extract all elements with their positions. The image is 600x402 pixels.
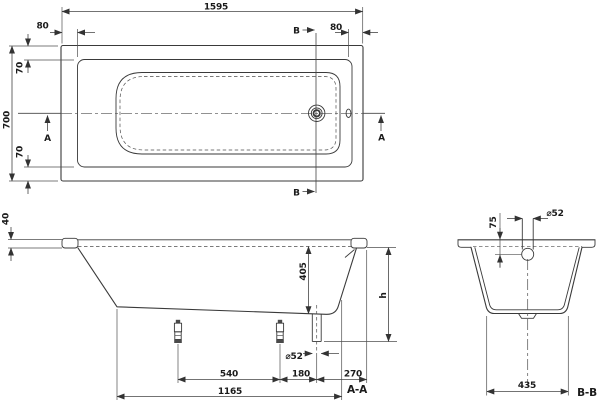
overflow-mark bbox=[345, 250, 355, 258]
dim-length-1595: 1595 bbox=[62, 3, 363, 44]
foot-base bbox=[276, 339, 284, 343]
dim-rim-side-top-70: 70 bbox=[16, 34, 75, 74]
adjustable-foot-right bbox=[276, 320, 284, 383]
section-label-b: B bbox=[293, 189, 300, 199]
section-bb-view: ⌀52 75 435 B-B bbox=[458, 209, 597, 399]
foot-body bbox=[276, 323, 283, 332]
section-marker-a-right: A bbox=[378, 116, 385, 144]
section-label-a: A bbox=[44, 134, 51, 144]
dim-label-70: 70 bbox=[16, 62, 26, 74]
rim-hook-right bbox=[582, 240, 595, 247]
dim-drain-depth-75: 75 bbox=[489, 213, 522, 268]
dim-label-80: 80 bbox=[36, 22, 48, 32]
section-aa-view: 40 405 h ⌀52 540 18 bbox=[2, 213, 398, 400]
dim-label-1595: 1595 bbox=[204, 3, 228, 13]
dim-rim-end-left-80: 80 bbox=[36, 22, 95, 58]
section-label-a: A bbox=[378, 134, 385, 144]
section-aa-label: A-A bbox=[347, 384, 368, 396]
dim-label-1165: 1165 bbox=[218, 387, 242, 397]
dim-rim-end-right-80: 80 bbox=[330, 23, 378, 57]
dim-height-h: h bbox=[367, 248, 396, 342]
tub-profile bbox=[78, 248, 357, 314]
foot-base bbox=[174, 339, 182, 343]
dim-rim-side-bottom-70: 70 bbox=[16, 146, 75, 194]
foot-cap bbox=[278, 320, 282, 323]
section-label-b: B bbox=[293, 27, 300, 37]
dim-depth-405: 405 bbox=[299, 247, 309, 314]
dim-label-40: 40 bbox=[2, 213, 12, 225]
technical-drawing-page: 1595 80 80 700 70 bbox=[0, 0, 600, 402]
section-bb-label: B-B bbox=[577, 387, 597, 399]
bathtub-technical-drawing: 1595 80 80 700 70 bbox=[0, 0, 600, 402]
dim-label-435: 435 bbox=[518, 381, 536, 391]
dim-label-270: 270 bbox=[344, 370, 362, 380]
dim-rim-height-40: 40 bbox=[2, 213, 12, 261]
foot-cap bbox=[176, 320, 180, 323]
dim-label-540: 540 bbox=[220, 370, 238, 380]
dim-label-d52: ⌀52 bbox=[285, 352, 302, 362]
dim-label-700: 700 bbox=[3, 111, 13, 129]
dim-drain-diameter-aa: ⌀52 bbox=[285, 352, 339, 362]
dim-label-180: 180 bbox=[292, 370, 310, 380]
dim-label-405: 405 bbox=[299, 262, 309, 280]
dim-label-d52: ⌀52 bbox=[546, 209, 563, 219]
dim-label-80: 80 bbox=[330, 23, 342, 33]
section-marker-b-bottom: B bbox=[293, 189, 314, 199]
dim-label-75: 75 bbox=[489, 216, 499, 228]
foot-body bbox=[174, 323, 181, 332]
rim-profile-left bbox=[62, 238, 78, 248]
section-marker-b-top: B bbox=[293, 27, 314, 37]
rim-hook-left bbox=[458, 240, 471, 247]
dim-drain-diameter-bb: ⌀52 bbox=[507, 209, 564, 219]
dim-label-70: 70 bbox=[16, 146, 26, 158]
dim-label-h: h bbox=[379, 292, 389, 298]
drain-circle bbox=[522, 248, 534, 260]
dim-bottom-chain: 540 180 270 1165 bbox=[117, 250, 367, 400]
shell-inner bbox=[475, 247, 579, 309]
adjustable-foot-left bbox=[174, 320, 182, 383]
section-marker-a-left: A bbox=[44, 116, 51, 145]
rim-profile-right bbox=[351, 238, 367, 248]
shell-outer bbox=[471, 247, 582, 313]
top-view: 1595 80 80 700 70 bbox=[3, 3, 386, 199]
